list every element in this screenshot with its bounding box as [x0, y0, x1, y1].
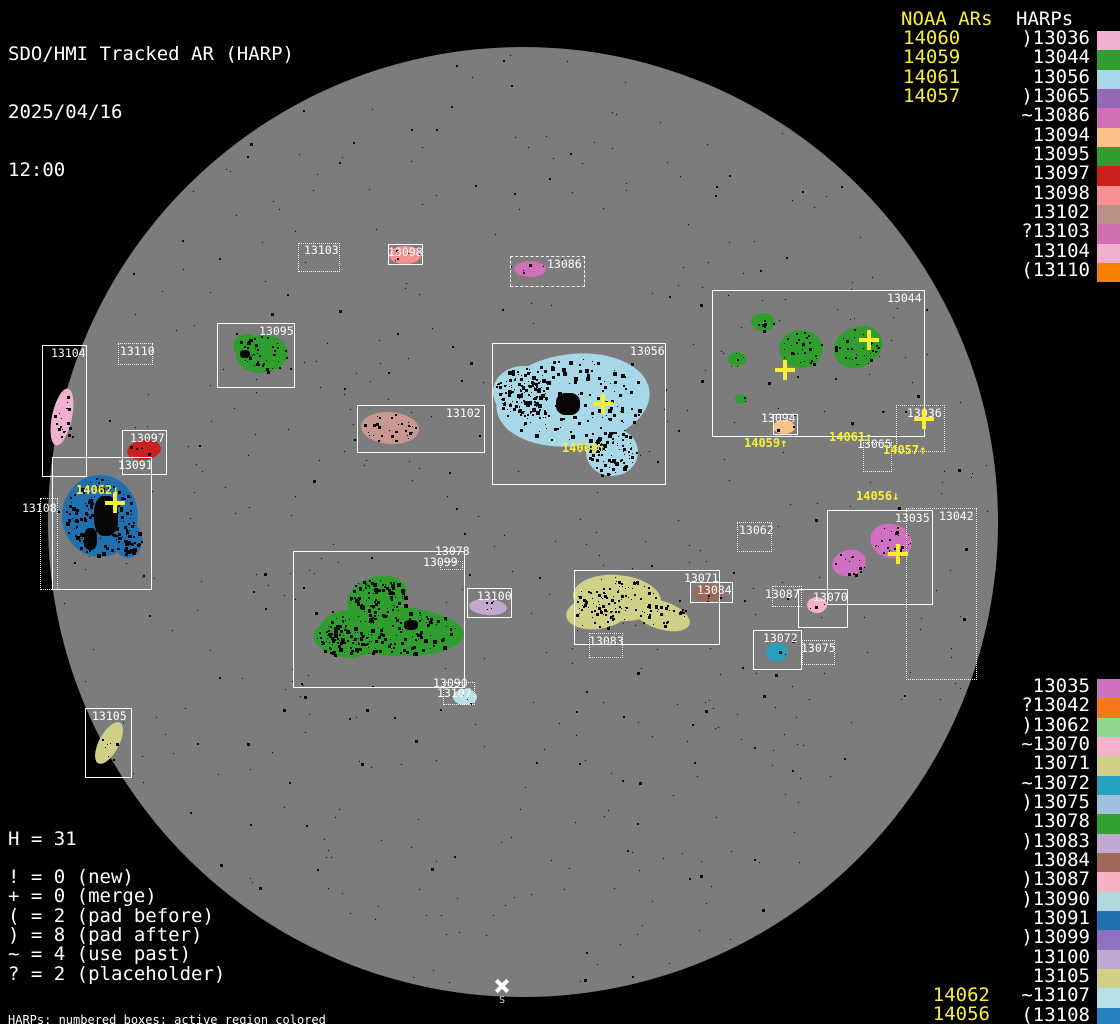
speckle	[478, 516, 479, 517]
harp-box-label-13070: 13070	[813, 591, 848, 604]
speckle	[419, 294, 420, 295]
speckle	[353, 142, 355, 144]
speckle	[344, 394, 345, 395]
speckle	[824, 673, 825, 674]
south-pole-label: S	[499, 995, 505, 1006]
speckle	[406, 283, 407, 284]
speckle	[940, 699, 941, 700]
speckle	[454, 856, 456, 858]
speckle	[570, 153, 572, 155]
speckle	[147, 426, 148, 427]
speckle	[544, 749, 545, 750]
speckle	[585, 760, 586, 761]
harp-color-swatch-13075	[1097, 795, 1120, 814]
speckle	[657, 649, 658, 650]
harp-color-swatch-13056	[1097, 70, 1120, 89]
speckle	[472, 77, 473, 78]
harp-box-label-13095: 13095	[259, 325, 294, 338]
speckle	[456, 65, 458, 67]
speckle	[638, 722, 639, 723]
speckle	[809, 699, 810, 700]
speckle	[705, 710, 708, 713]
speckle	[447, 496, 448, 497]
speckle	[733, 572, 735, 574]
speckle	[608, 810, 609, 811]
speckle	[284, 807, 285, 808]
noaa-shifted-label: 14056↓	[856, 490, 899, 503]
speckle	[306, 825, 308, 827]
speckle	[673, 795, 674, 796]
speckle	[637, 934, 638, 935]
noaa-ar-number: 14057	[903, 87, 960, 106]
speckle	[290, 573, 291, 574]
speckle	[135, 427, 136, 428]
south-pole-x-marker	[494, 978, 510, 994]
speckle	[642, 925, 643, 926]
harp-list-entry: )13087	[984, 870, 1090, 889]
speckle	[798, 802, 799, 803]
speckle	[572, 192, 573, 193]
speckle	[250, 824, 252, 826]
speckle	[379, 340, 380, 341]
harp-color-swatch-13108	[1097, 1008, 1120, 1024]
speckle	[632, 852, 633, 853]
speckle	[754, 859, 756, 861]
harp-color-swatch-13095	[1097, 147, 1120, 166]
speckle	[986, 465, 987, 466]
speckle	[182, 240, 184, 242]
speckle	[625, 82, 626, 83]
noaa-cross-14059	[775, 360, 795, 380]
speckle	[327, 343, 328, 344]
speckle	[941, 493, 942, 494]
speckle	[176, 330, 177, 331]
footer-notes: HARPs: numbered boxes; active region col…	[8, 989, 427, 1024]
speckle	[432, 328, 433, 329]
speckle	[632, 568, 633, 569]
speckle	[596, 532, 597, 533]
harp-list-bottom: 13035?13042)13062~1307013071~13072)13075…	[984, 677, 1090, 1024]
speckle	[505, 905, 506, 906]
speckle	[85, 681, 86, 682]
harp-box-label-13104: 13104	[51, 347, 86, 360]
speckle	[436, 195, 437, 196]
speckle	[927, 354, 928, 355]
speckle	[549, 178, 551, 180]
speckle	[303, 110, 305, 112]
speckle	[272, 752, 273, 753]
speckle	[678, 285, 679, 286]
harp-color-swatch-13078	[1097, 814, 1120, 833]
harp-box-label-13044: 13044	[887, 292, 922, 305]
speckle	[763, 695, 766, 698]
speckle	[422, 147, 423, 148]
speckle	[794, 832, 795, 833]
speckle	[744, 600, 746, 602]
harp-box-label-13083: 13083	[589, 635, 624, 648]
speckle	[194, 325, 195, 326]
speckle	[553, 158, 554, 159]
speckle	[519, 209, 520, 210]
speckle	[253, 591, 255, 593]
speckle	[190, 812, 192, 814]
noaa-ar-list-bottom: 1406214056	[900, 986, 990, 1024]
speckle	[370, 381, 371, 382]
speckle	[469, 574, 471, 576]
speckle	[149, 615, 151, 617]
speckle	[555, 541, 556, 542]
harp-box-label-13091: 13091	[118, 459, 153, 472]
speckle	[422, 204, 423, 205]
speckle	[688, 224, 689, 225]
speckle	[710, 648, 711, 649]
speckle	[464, 533, 466, 535]
speckle	[597, 492, 598, 493]
speckle	[411, 161, 412, 162]
speckle	[364, 465, 365, 466]
speckle	[211, 421, 212, 422]
speckle	[295, 496, 296, 497]
speckle	[582, 163, 583, 164]
legend-row: + = 0 (merge)	[8, 887, 225, 906]
speckle	[372, 109, 373, 110]
speckle	[724, 459, 725, 460]
harp-list-entry: 13044	[984, 48, 1090, 67]
speckle	[512, 571, 513, 572]
speckle	[783, 452, 784, 453]
speckle	[797, 744, 798, 745]
speckle	[697, 776, 698, 777]
noaa-ar-number: 14056	[900, 1005, 990, 1024]
speckle	[324, 839, 325, 840]
speckle	[796, 717, 797, 718]
speckle	[616, 114, 617, 115]
speckle	[194, 492, 195, 493]
speckle	[572, 663, 573, 664]
speckle	[742, 667, 744, 669]
speckle	[960, 402, 961, 403]
speckle	[515, 137, 516, 138]
harp-list-entry: ?13103	[984, 222, 1090, 241]
harp-color-swatch-13099	[1097, 930, 1120, 949]
speckle	[381, 840, 382, 841]
speckle	[762, 909, 765, 912]
speckle	[375, 919, 376, 920]
speckle	[754, 747, 756, 749]
speckle	[612, 148, 613, 149]
speckle	[549, 594, 550, 595]
speckle	[958, 469, 961, 472]
speckle	[461, 380, 463, 382]
noaa-shifted-label: 14060↑	[562, 442, 605, 455]
speckle	[580, 519, 581, 520]
harp-box-label-13103: 13103	[304, 244, 339, 257]
speckle	[715, 728, 716, 729]
harp-color-swatch-13070	[1097, 737, 1120, 756]
speckle	[603, 702, 604, 703]
speckle	[418, 819, 419, 820]
speckle	[218, 774, 219, 775]
speckle	[531, 894, 532, 895]
speckle	[413, 977, 414, 978]
speckle	[632, 976, 634, 978]
harp-count: H = 31	[8, 830, 77, 849]
speckle	[249, 507, 250, 508]
speckle	[782, 133, 783, 134]
speckle	[844, 758, 846, 760]
speckle	[190, 518, 191, 519]
speckle	[706, 903, 707, 904]
speckle	[792, 686, 793, 687]
speckle	[700, 304, 703, 307]
noaa-shifted-label: 14057↑	[883, 444, 926, 457]
speckle	[300, 696, 301, 697]
speckle	[326, 857, 327, 858]
speckle	[295, 231, 296, 232]
harp-box-label-13062: 13062	[739, 524, 774, 537]
speckle	[433, 970, 434, 971]
speckle	[701, 380, 704, 383]
speckle	[335, 817, 336, 818]
speckle	[528, 147, 529, 148]
speckle	[841, 186, 843, 188]
speckle	[944, 471, 945, 472]
speckle	[493, 915, 494, 916]
speckle	[366, 709, 369, 712]
speckle	[872, 277, 873, 278]
speckle	[459, 932, 460, 933]
speckle	[259, 887, 262, 890]
speckle	[361, 763, 364, 766]
speckle	[419, 468, 420, 469]
speckle	[860, 237, 861, 238]
noaa-cross-14057	[914, 409, 934, 429]
speckle	[219, 258, 221, 260]
harp-color-swatch-13044	[1097, 50, 1120, 69]
harp-list-entry: 13097	[984, 164, 1090, 183]
speckle	[620, 944, 621, 945]
speckle	[700, 550, 701, 551]
speckle	[720, 674, 721, 675]
speckle	[317, 174, 318, 175]
speckle	[792, 770, 794, 772]
noaa-ar-list-top: 14060140591406114057	[903, 29, 960, 106]
speckle	[457, 898, 458, 899]
speckle	[972, 473, 973, 474]
speckle	[576, 735, 577, 736]
speckle	[185, 708, 186, 709]
speckle	[597, 964, 598, 965]
noaa-shifted-label: 14061↑	[829, 431, 872, 444]
speckle	[486, 935, 487, 936]
speckle	[154, 578, 155, 579]
speckle	[64, 603, 65, 604]
harp-box-label-13087: 13087	[765, 588, 800, 601]
harp-box-label-13042: 13042	[939, 510, 974, 523]
speckle	[142, 756, 143, 757]
speckle	[201, 581, 202, 582]
speckle	[483, 382, 484, 383]
speckle	[288, 429, 289, 430]
speckle	[441, 915, 442, 916]
speckle	[713, 708, 714, 709]
harp-color-swatch-13102	[1097, 205, 1120, 224]
speckle	[256, 574, 257, 575]
speckle	[645, 541, 646, 542]
speckle	[531, 613, 532, 614]
speckle	[782, 582, 783, 583]
speckle	[775, 674, 778, 677]
speckle	[436, 129, 438, 131]
speckle	[639, 782, 642, 785]
speckle	[291, 515, 292, 516]
speckle	[716, 186, 718, 188]
speckle	[109, 420, 111, 422]
speckle	[678, 520, 679, 521]
page-title: SDO/HMI Tracked AR (HARP) 2025/04/16 12:…	[8, 6, 294, 219]
speckle	[533, 702, 534, 703]
speckle	[320, 387, 321, 388]
speckle	[760, 270, 762, 272]
harp-box-label-13090: 13090	[433, 677, 468, 690]
speckle	[452, 346, 454, 348]
speckle	[971, 477, 972, 478]
speckle	[699, 930, 700, 931]
speckle	[701, 861, 702, 862]
harp-box-label-13072: 13072	[763, 632, 798, 645]
speckle	[785, 794, 786, 795]
speckle	[800, 778, 801, 779]
speckle	[639, 870, 640, 871]
harp-color-swatch-13072	[1097, 776, 1120, 795]
speckle	[579, 763, 581, 765]
speckle	[754, 241, 755, 242]
speckle	[692, 724, 694, 726]
harp-list-entry: ~13107	[984, 986, 1090, 1005]
speckle	[539, 577, 541, 579]
speckle	[864, 617, 865, 618]
speckle	[778, 526, 779, 527]
noaa-cross-14056	[888, 544, 908, 564]
speckle	[162, 291, 163, 292]
speckle	[715, 195, 717, 197]
speckle	[283, 709, 286, 712]
speckle	[350, 913, 351, 914]
harp-box-label-13102: 13102	[446, 407, 481, 420]
speckle	[484, 746, 485, 747]
speckle	[299, 154, 300, 155]
harp-box-label-13035: 13035	[895, 512, 930, 525]
speckle	[525, 787, 526, 788]
speckle	[960, 688, 961, 689]
speckle	[304, 696, 307, 699]
speckle	[611, 773, 612, 774]
speckle	[196, 464, 197, 465]
speckle	[942, 482, 943, 483]
speckle	[344, 388, 346, 390]
speckle	[503, 60, 505, 62]
speckle	[576, 711, 578, 713]
speckle	[504, 535, 505, 536]
speckle	[718, 727, 719, 728]
speckle	[256, 392, 257, 393]
harp-box-label-13108: 13108	[22, 502, 57, 515]
speckle	[850, 506, 851, 507]
harp-color-swatch-13107	[1097, 988, 1120, 1007]
harp-color-swatch-13065	[1097, 89, 1120, 108]
speckle	[775, 707, 776, 708]
speckle	[687, 741, 688, 742]
speckle	[350, 409, 351, 410]
speckle	[687, 410, 688, 411]
speckle	[660, 122, 661, 123]
speckle	[333, 544, 334, 545]
speckle	[394, 717, 396, 719]
speckle	[603, 208, 604, 209]
speckle	[564, 889, 565, 890]
speckle	[436, 861, 437, 862]
harp-color-swatch-13098	[1097, 186, 1120, 205]
speckle	[495, 234, 496, 235]
speckle	[511, 85, 513, 87]
speckle	[220, 864, 223, 867]
speckle	[197, 743, 199, 745]
speckle	[304, 362, 305, 363]
speckle	[652, 293, 653, 294]
harp-color-swatch-13086	[1097, 108, 1120, 127]
speckle	[349, 718, 351, 720]
harp-box-label-13110: 13110	[120, 345, 155, 358]
speckle	[586, 691, 588, 693]
speckle	[514, 897, 515, 898]
harp-list-entry: 13078	[984, 812, 1090, 831]
speckle	[817, 503, 818, 504]
speckle	[677, 704, 678, 705]
speckle	[173, 753, 174, 754]
speckle	[551, 305, 552, 306]
speckle	[792, 200, 793, 201]
speckle	[546, 136, 547, 137]
speckle	[694, 762, 696, 764]
speckle	[852, 282, 853, 283]
speckle	[707, 144, 708, 145]
speckle	[803, 745, 804, 746]
harp-box-13056	[492, 343, 666, 485]
speckle	[689, 878, 691, 880]
harp-color-swatch-13100	[1097, 950, 1120, 969]
speckle	[317, 869, 319, 871]
harp-box-label-13094: 13094	[761, 412, 796, 425]
harp-box-13042	[906, 508, 977, 680]
speckle	[210, 385, 211, 386]
speckle	[678, 430, 680, 432]
speckle	[815, 519, 818, 522]
harp-color-swatch-13105	[1097, 969, 1120, 988]
speckle	[637, 823, 639, 825]
speckle	[376, 229, 377, 230]
speckle	[405, 288, 406, 289]
speckle	[626, 190, 627, 191]
speckle	[265, 608, 267, 610]
speckle	[264, 573, 267, 576]
speckle	[250, 878, 251, 879]
speckle	[419, 889, 420, 890]
speckle	[729, 480, 730, 481]
speckle	[533, 323, 534, 324]
speckle	[255, 434, 256, 435]
harp-color-swatch-13042	[1097, 698, 1120, 717]
speckle	[284, 595, 285, 596]
